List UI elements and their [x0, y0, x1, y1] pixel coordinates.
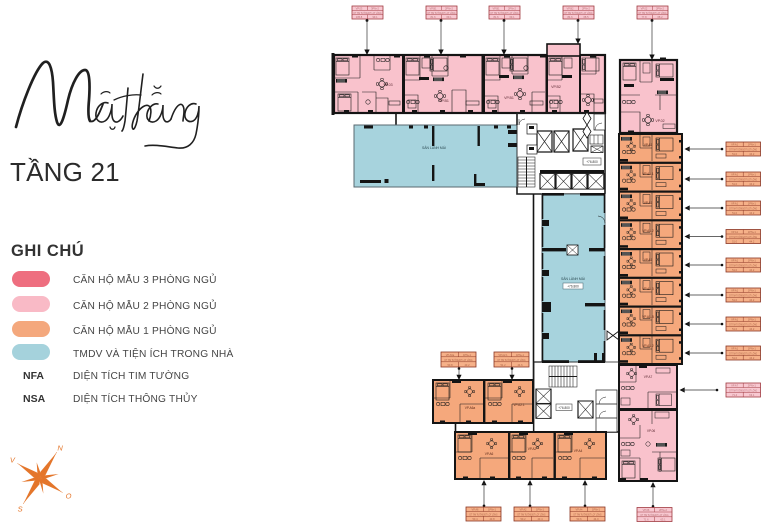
svg-text:63.1: 63.1: [660, 518, 666, 522]
svg-text:VP.A4: VP.A4: [575, 508, 583, 512]
svg-text:43.2: 43.2: [464, 363, 470, 367]
svg-text:51.2: 51.2: [500, 363, 506, 367]
svg-text:CĂN HỘ MẪU 2 PHÒNG NGỦ: CĂN HỘ MẪU 2 PHÒNG NGỦ: [73, 299, 217, 312]
svg-text:TMDV VÀ TIỆN ÍCH TRONG NHÀ: TMDV VÀ TIỆN ÍCH TRONG NHÀ: [73, 347, 233, 360]
svg-text:O: O: [66, 491, 72, 500]
svg-text:2PN+2: 2PN+2: [582, 6, 591, 10]
svg-text:CĂN HỘ MẪU 3 PHÒNG NGỦ: CĂN HỘ MẪU 3 PHÒNG NGỦ: [73, 273, 217, 286]
svg-text:50.6: 50.6: [576, 517, 582, 521]
svg-text:1PN+1: 1PN+1: [592, 508, 601, 512]
svg-text:2PN+2: 2PN+2: [508, 6, 517, 10]
svg-text:VP.03: VP.03: [383, 83, 392, 87]
svg-text:50.8: 50.8: [447, 363, 453, 367]
svg-text:VP.A7: VP.A7: [644, 375, 653, 379]
svg-text:TẦNG 21: TẦNG 21: [10, 157, 120, 187]
svg-text:SÂN LÀNH MÁI: SÂN LÀNH MÁI: [422, 146, 446, 150]
svg-text:2PN+2: 2PN+2: [445, 6, 454, 10]
svg-text:VP.A1: VP.A1: [644, 143, 653, 147]
svg-text:VP.B1: VP.B1: [492, 6, 500, 10]
svg-text:DIỆN TÍCH TIM TƯỜNG: DIỆN TÍCH TIM TƯỜNG: [73, 369, 189, 382]
svg-text:NFA: NFA: [23, 370, 44, 382]
svg-text:VP.B2: VP.B2: [551, 85, 561, 89]
svg-text:CĂN HỘ MẪU 1 PHÒNG NGỦ: CĂN HỘ MẪU 1 PHÒNG NGỦ: [73, 324, 217, 337]
svg-text:+76.800: +76.800: [567, 285, 579, 289]
svg-text:VP.B2: VP.B2: [566, 6, 574, 10]
svg-text:VP.A1.2: VP.A1.2: [642, 344, 654, 348]
svg-text:71.6: 71.6: [643, 518, 649, 522]
svg-text:VP.A1.2: VP.A1.2: [642, 229, 654, 233]
svg-text:+76.800: +76.800: [558, 406, 570, 410]
svg-text:+76.800: +76.800: [586, 160, 598, 164]
svg-text:VP.B1: VP.B1: [439, 99, 449, 103]
svg-text:68.2: 68.2: [657, 15, 663, 19]
svg-text:50.2: 50.2: [520, 517, 526, 521]
svg-text:43.8: 43.8: [489, 517, 495, 521]
svg-text:71.4: 71.4: [732, 393, 738, 397]
svg-text:VP.A6: VP.A6: [485, 452, 494, 456]
svg-text:SÂN LÀNH MÁI: SÂN LÀNH MÁI: [561, 277, 585, 281]
svg-text:VP.A2: VP.A2: [519, 508, 527, 512]
svg-text:81.6: 81.6: [493, 15, 499, 19]
svg-text:2PN+1: 2PN+1: [748, 384, 757, 388]
svg-text:VP.06: VP.06: [647, 429, 655, 433]
svg-text:VP.A1.1: VP.A1.1: [642, 172, 654, 176]
svg-text:VP.A2.1: VP.A2.1: [498, 353, 508, 357]
svg-text:99.1: 99.1: [372, 15, 378, 19]
svg-text:VP.06: VP.06: [643, 508, 650, 512]
svg-text:N: N: [57, 443, 63, 452]
svg-text:VP.B1: VP.B1: [504, 96, 514, 100]
svg-text:68.5: 68.5: [583, 15, 589, 19]
svg-text:VP.03: VP.03: [356, 6, 363, 10]
svg-text:VP.02: VP.02: [641, 6, 648, 10]
svg-text:VP.A6: VP.A6: [471, 508, 479, 512]
svg-text:44.6: 44.6: [517, 363, 523, 367]
svg-text:VP.A1.3: VP.A1.3: [642, 287, 654, 291]
svg-text:NSA: NSA: [23, 393, 46, 405]
svg-text:2PN+2: 2PN+2: [659, 508, 668, 512]
svg-text:69.1: 69.1: [509, 15, 515, 19]
svg-text:1PN+1: 1PN+1: [463, 353, 472, 357]
svg-text:50.4: 50.4: [472, 517, 478, 521]
svg-text:84.6: 84.6: [567, 15, 573, 19]
svg-text:44.0: 44.0: [593, 517, 599, 521]
svg-text:VP.A1-B: VP.A1-B: [642, 315, 654, 319]
svg-text:81.6: 81.6: [430, 15, 436, 19]
svg-text:43.4: 43.4: [537, 517, 543, 521]
svg-text:3PN+2: 3PN+2: [371, 6, 380, 10]
svg-text:VP.A6a: VP.A6a: [446, 353, 455, 357]
svg-text:VP.B1: VP.B1: [429, 6, 437, 10]
svg-text:VP.A2: VP.A2: [528, 447, 537, 451]
svg-text:VP.A1: VP.A1: [644, 258, 653, 262]
svg-text:VP.A1: VP.A1: [644, 201, 653, 205]
svg-text:77.8: 77.8: [641, 15, 647, 19]
svg-text:VP.A6a: VP.A6a: [465, 406, 476, 410]
svg-text:2PN+2: 2PN+2: [656, 6, 665, 10]
svg-text:GHI CHÚ: GHI CHÚ: [11, 241, 84, 260]
svg-text:VP.A4: VP.A4: [574, 449, 583, 453]
svg-text:VP.02: VP.02: [655, 119, 664, 123]
svg-text:1PN+1: 1PN+1: [488, 508, 497, 512]
svg-text:VP.A7: VP.A7: [731, 384, 739, 388]
svg-text:1PN+1: 1PN+1: [536, 508, 545, 512]
svg-text:S: S: [18, 505, 23, 514]
svg-text:105.8: 105.8: [356, 15, 363, 19]
svg-text:VP.A2.1: VP.A2.1: [513, 403, 525, 407]
svg-text:DIỆN TÍCH THÔNG THỦY: DIỆN TÍCH THÔNG THỦY: [73, 392, 198, 405]
svg-text:63.1: 63.1: [749, 393, 755, 397]
svg-text:69.1: 69.1: [446, 15, 452, 19]
svg-text:1PN+1: 1PN+1: [516, 353, 525, 357]
